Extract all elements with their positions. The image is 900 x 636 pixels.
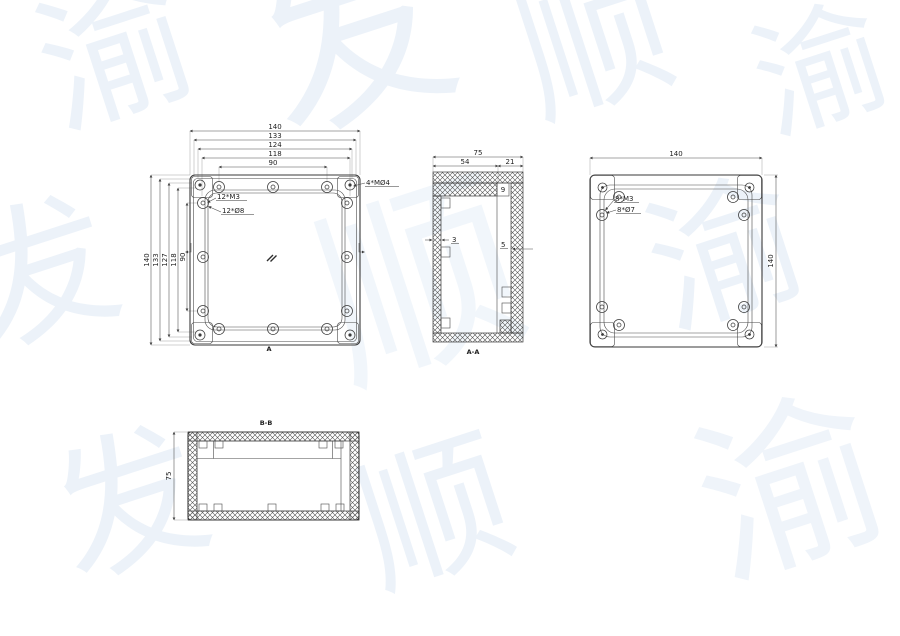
dim-label: 118 [170,253,178,266]
back-dimensions: 140 140 [590,150,778,347]
callout-hole: 8*Ø7 [617,206,635,214]
screw-boss [597,302,608,313]
mounting-hole [195,180,205,190]
dim-label: 90 [269,159,278,167]
dim-label: 140 [268,123,281,131]
screw-boss [342,252,353,263]
boss-section [214,504,222,511]
screw-boss [322,182,333,193]
dim-label: 140 [143,253,151,266]
section-bb-dimension: 75 [165,432,187,520]
section-bb-label: B-B [260,419,273,427]
mounting-hole [345,330,355,340]
top-wall [188,432,359,441]
boss-section [502,287,511,297]
screw-boss [322,324,333,335]
screw-boss [597,210,608,221]
back-view: 140 140 [590,150,778,347]
section-aa-label: A-A [467,348,480,356]
dim-label: 54 [461,158,470,166]
boss-section [335,441,343,448]
front-enclosure-outline [190,175,360,345]
dim-label: 5 [501,241,505,249]
right-wall [511,183,523,333]
screw-boss [198,252,209,263]
boss-section [441,247,450,257]
dim-label: 9 [501,186,505,194]
dim-label: 75 [165,472,173,481]
boss-section [215,441,223,448]
dim-label: 127 [161,253,169,266]
right-wall [350,432,359,520]
lid-wall [433,172,523,183]
boss-section [336,504,344,511]
corner-block [500,320,511,333]
mounting-hole [745,183,754,192]
screw-boss [214,182,225,193]
callout-mount: 4*MØ4 [366,179,391,187]
section-bb-view: B-B 75 [165,419,359,520]
screw-boss [198,198,209,209]
mounting-hole [745,330,754,339]
boss-section [441,198,450,208]
section-aa-view: 75 54 21 9 [425,149,533,356]
screw-boss [728,192,739,203]
dim-label: 140 [767,254,775,267]
dim-label: 140 [669,150,682,158]
screw-boss [728,320,739,331]
mounting-hole [598,183,607,192]
drawing-sheet: 140 133 124 118 90 140 133 [0,0,900,636]
dim-label: 118 [268,150,281,158]
left-wall [188,432,197,520]
back-callouts: 8*M3 8*Ø7 [606,195,642,214]
boss-section [502,303,511,313]
technical-drawing-page: 渝 发 顺 渝 发 顺 渝 发 顺 渝 [0,0,900,636]
dim-label: 75 [474,149,483,157]
dim-label: 124 [268,141,282,149]
front-callouts: 12*M3 12*Ø8 4*MØ4 [208,179,400,215]
screw-boss [614,320,625,331]
boss-section [319,441,327,448]
front-top-dimension-chain: 140 133 124 118 90 [190,123,360,196]
bottom-wall [433,333,523,342]
dim-label: 3 [452,236,456,244]
front-view: 140 133 124 118 90 140 133 [143,123,399,353]
callout-hole: 12*Ø8 [222,207,244,215]
section-aa-body: 9 [433,172,523,342]
screw-boss [214,324,225,335]
boss-section [268,504,276,511]
callout-thread: 8*M3 [615,195,633,203]
screw-boss [198,306,209,317]
section-bb-body [188,432,359,520]
flange-wall [433,183,497,196]
boss-section [321,504,329,511]
screw-boss [268,182,279,193]
bottom-wall [188,511,359,520]
screw-boss [342,306,353,317]
callout-thread: 12*M3 [217,193,240,201]
mounting-hole [598,330,607,339]
boss-section [441,318,450,328]
dim-label: 90 [179,253,187,262]
front-screw-bosses [198,182,353,335]
section-letter: A [266,345,271,353]
screw-boss [268,324,279,335]
dim-label: 133 [152,253,160,266]
front-mounting-holes [195,180,355,340]
boss-section [199,441,207,448]
dim-label: 21 [506,158,515,166]
boss-section [199,504,207,511]
dim-label: 133 [268,132,281,140]
screw-boss [342,198,353,209]
left-wall [433,196,441,333]
center-mark [267,255,277,262]
mounting-hole [195,330,205,340]
